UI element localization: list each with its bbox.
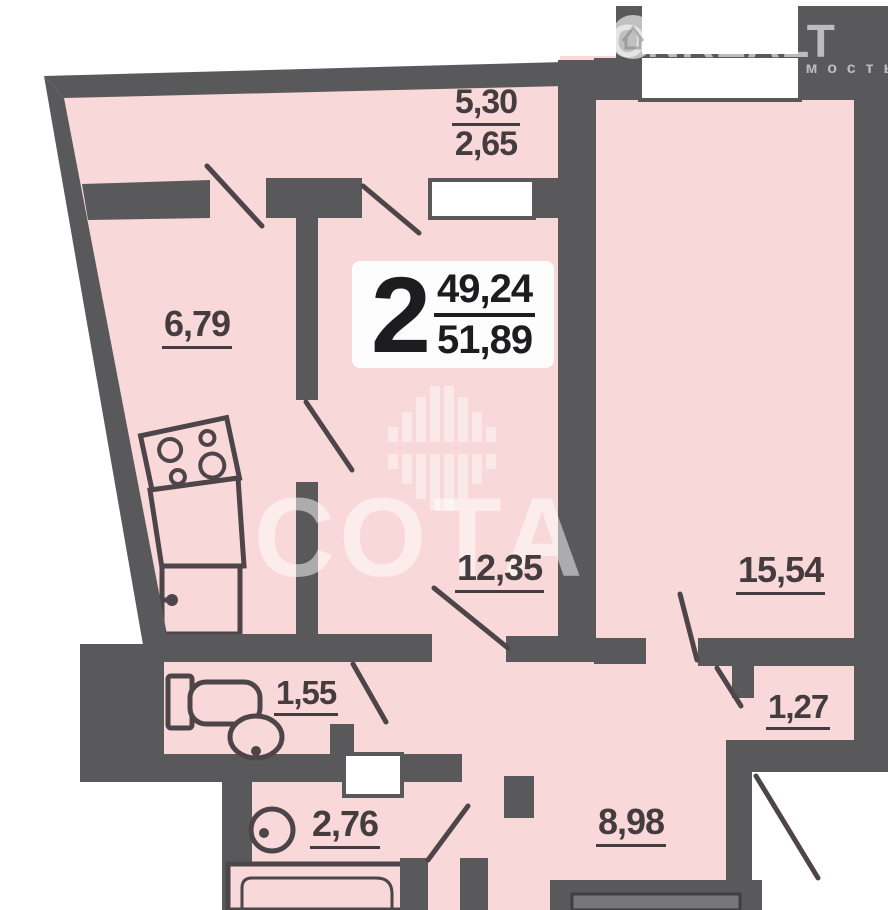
room-area-balcony: 5,30 2,65 [436,84,536,162]
balcony-area-bottom: 2,65 [436,126,536,163]
room-area-bathroom: 2,76 [310,806,380,842]
room-area-kitchen: 6,79 [162,306,232,342]
wall-balcony-1 [82,180,210,220]
wc-basin-drain [251,746,261,756]
wall-hall-top-left [150,634,432,662]
brand-watermark-subtext: недвижимость [666,60,888,78]
wall-wc-bottom [80,754,462,782]
kitchen-counter-icon [150,478,244,568]
wall-kitchen-upper [296,214,318,400]
unit-info-badge: 2 49,24 51,89 [352,261,554,368]
wall-hall-top-mid [506,636,596,662]
room-area-hallway: 8,98 [596,804,666,840]
room-area-wc: 1,55 [274,676,338,709]
brand-logo-icon [610,14,656,60]
wall-closet-top [698,638,858,666]
room-area-closet: 1,27 [766,690,830,723]
unit-area-top: 49,24 [434,269,535,317]
wall-hall-right [726,740,752,888]
wall-right-outer [854,6,888,744]
rooms-count: 2 [371,267,426,362]
entrance-door [572,894,740,910]
wall-bathroom-right-stub [504,776,534,818]
bathtub-icon [228,864,404,910]
bath-basin-icon [251,809,293,851]
wall-hall-bath-stub [460,858,488,910]
window-balcony [430,180,534,218]
unit-area-fraction: 49,24 51,89 [434,269,535,360]
room-area-bedroom: 15,54 [736,552,825,588]
wall-closet-bottom [730,740,888,772]
door-swing-entrance [756,776,818,878]
kitchen-sink-drain [166,594,178,606]
bath-basin-drain [259,828,269,838]
wall-hall-top-stub [594,638,646,664]
room-area-living: 12,35 [455,550,544,586]
balcony-area-top: 5,30 [452,84,520,126]
unit-area-bottom: 51,89 [434,317,535,360]
wall-bath-bottom-stub [400,858,428,910]
floor-plan-page: СОТА ONREALT недвижимость 2 49,24 51,89 … [0,0,888,910]
vent-duct [344,754,402,796]
wall-balcony-2 [266,178,362,218]
